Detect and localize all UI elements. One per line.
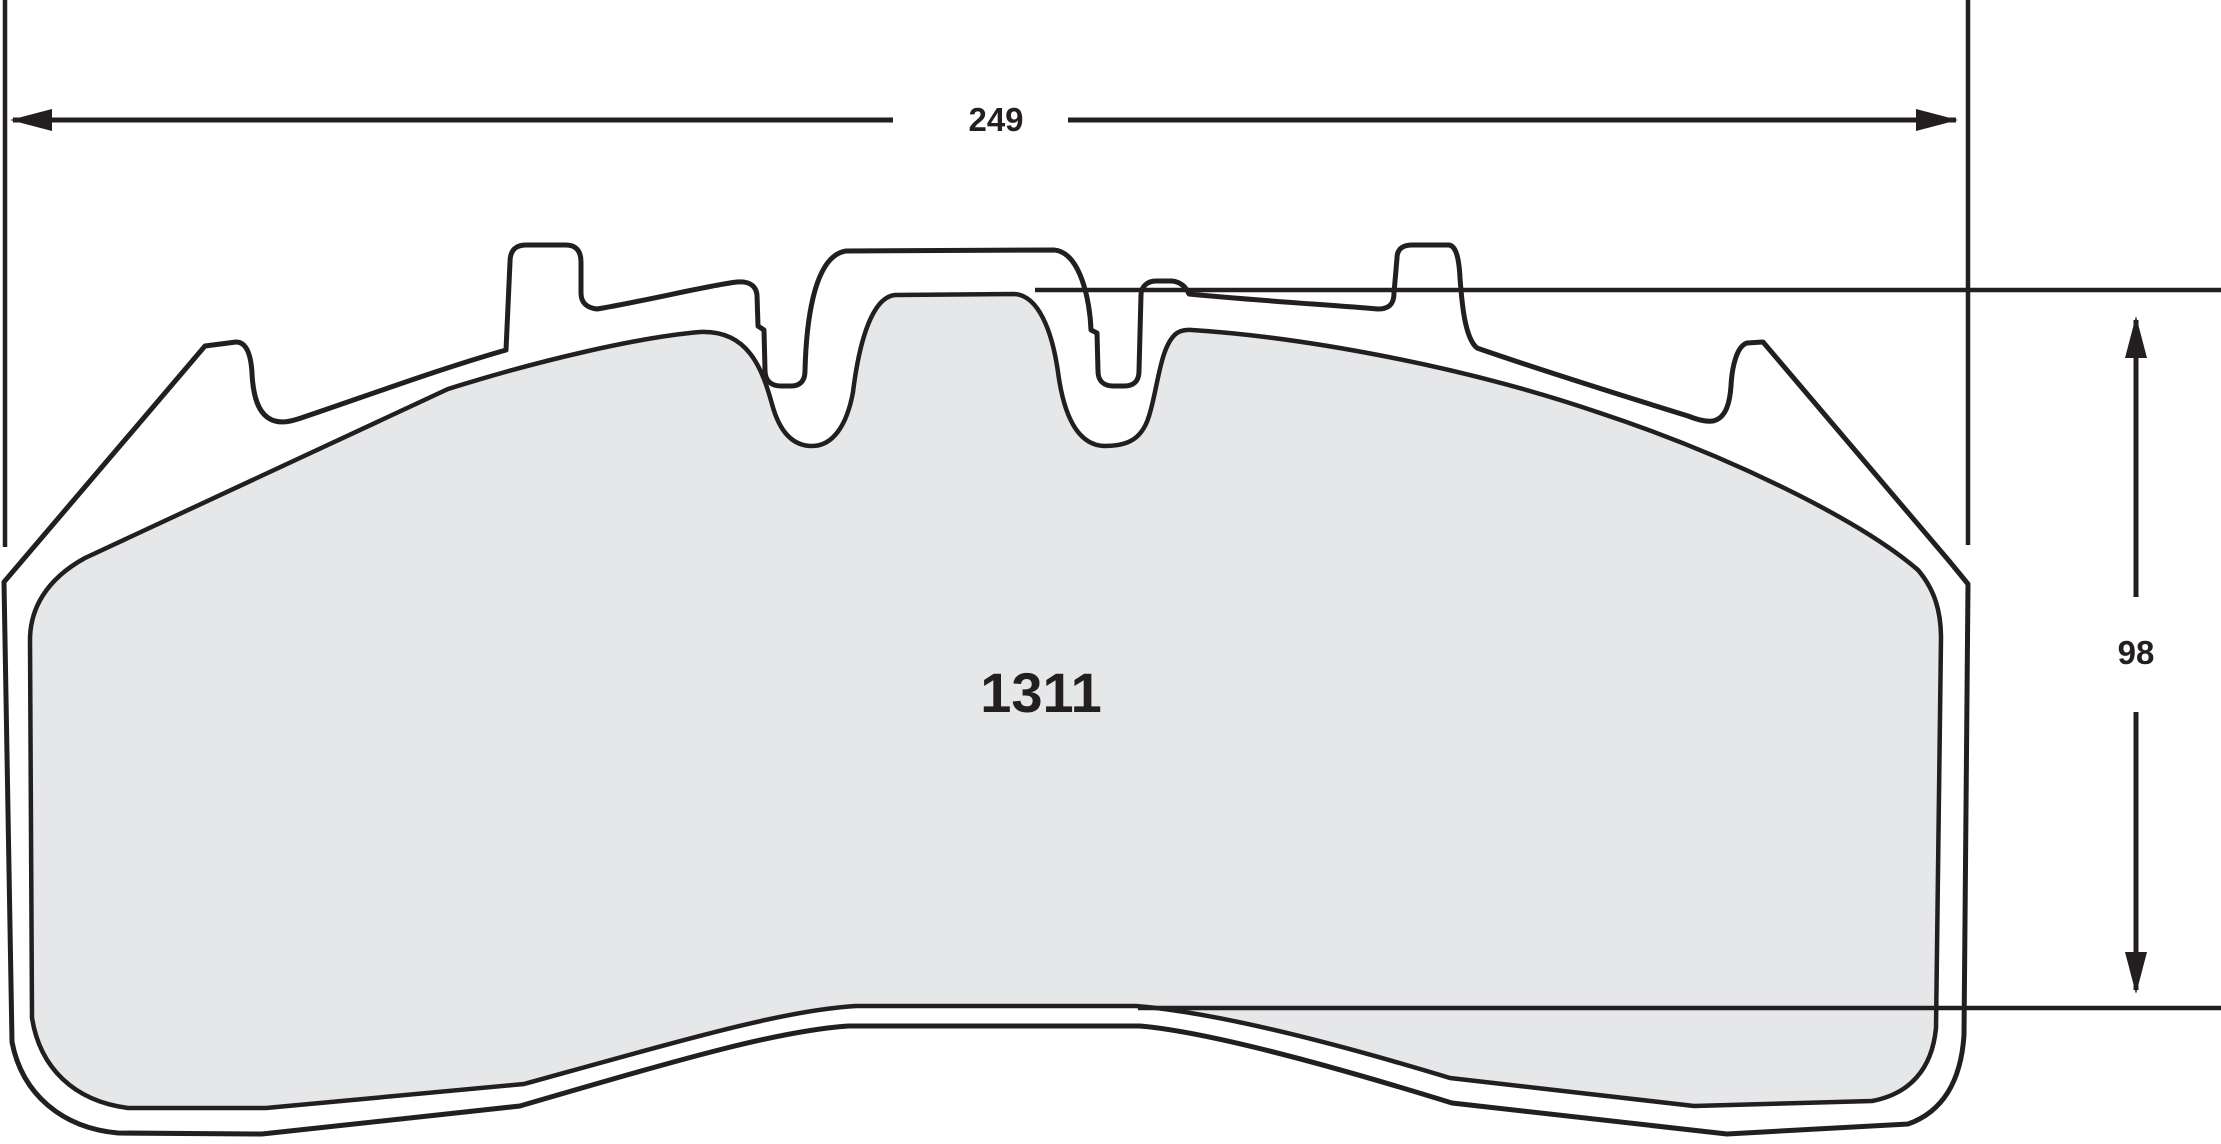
width-arrow-left-icon [10, 109, 52, 131]
width-dimension-label: 249 [968, 101, 1023, 138]
height-arrow-up-icon [2125, 316, 2147, 358]
part-number-label: 1311 [980, 661, 1102, 724]
width-arrow-right-icon [1916, 109, 1958, 131]
brake-pad-drawing: 249 98 1311 [0, 0, 2221, 1144]
height-arrow-down-icon [2125, 952, 2147, 994]
technical-drawing-canvas: 249 98 1311 [0, 0, 2221, 1144]
height-dimension-label: 98 [2118, 634, 2155, 671]
drawing-strokes [4, 0, 2221, 1134]
